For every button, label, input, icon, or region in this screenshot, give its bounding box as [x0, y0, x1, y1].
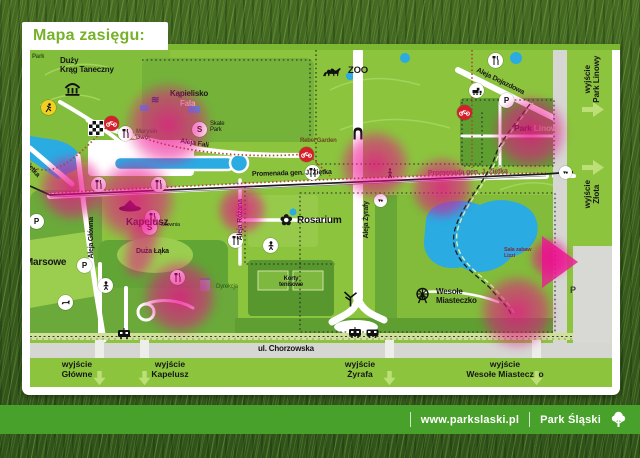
label-skate-park: Skate Park [210, 121, 224, 134]
restaurant-icon [118, 126, 133, 141]
parking-icon: P [499, 93, 514, 108]
label-rosarium: Rosarium [297, 216, 342, 227]
exit-arrow-right [582, 102, 604, 122]
label-park-linowy: Park Linowy [514, 124, 562, 133]
exit-arrow-down [137, 371, 152, 387]
footer-divider [529, 412, 530, 427]
viewpoint-icon: ▾● [374, 194, 387, 207]
bus-icon [366, 329, 379, 338]
page-title: Mapa zasięgu: [33, 27, 145, 45]
arch-monument-icon [352, 126, 364, 140]
label-aleja-glowna: Aleja Główna [88, 210, 96, 266]
playground-icon [263, 238, 278, 253]
parking-letter: P [570, 286, 576, 296]
label-sala-zabaw: Sala zabaw Lizzi [504, 248, 531, 260]
footer-bar: www.parkslaski.pl Park Śląski [0, 405, 640, 434]
label-dyrekcja: Dyrekcja [216, 284, 238, 290]
label-wesole: Wesołe Miasteczko [436, 288, 477, 305]
map-card: Park Duży Krąg Taneczny Kąpielisko Fala … [22, 44, 620, 395]
label-silownia: Siłownia [161, 223, 180, 229]
label-park: Park [32, 54, 44, 60]
footer-website[interactable]: www.parkslaski.pl [421, 414, 519, 426]
exit-arrow-down [382, 371, 397, 387]
label-aleja-rozana: Aleja Różana [237, 192, 245, 248]
tram-icon [117, 328, 131, 339]
park-map: Park Duży Krąg Taneczny Kąpielisko Fala … [30, 50, 612, 387]
ferris-wheel-icon [414, 287, 431, 304]
label-chorzowska: ul. Chorzowska [258, 345, 314, 354]
finish-flag-icon [88, 120, 104, 136]
kapelusz-hall-icon [118, 200, 142, 212]
walking-person-icon [386, 168, 394, 179]
viewpoint-icon: ▾● [559, 166, 572, 179]
map-title-box: Mapa zasięgu: [22, 22, 168, 50]
screenshot-root: { "title": "Mapa zasięgu:", "colors": { … [0, 0, 640, 458]
bike-icon [104, 116, 119, 131]
label-duza-laka: Duża Łąka [136, 248, 169, 256]
accent-line [165, 44, 620, 50]
skatepark-icon: S [192, 122, 207, 137]
rotunda-icon [64, 82, 81, 97]
bike-icon [457, 105, 472, 120]
restaurant-icon [170, 270, 185, 285]
label-park-linowy-b: Linowy [534, 123, 562, 133]
chorzowska-road [30, 343, 612, 358]
label-pola-marsowe: Pola Marsowe [30, 258, 66, 269]
label-korty: Korty tenisowe [268, 276, 314, 289]
playground-icon [98, 278, 113, 293]
exit-glowne: wyjście Główne [32, 360, 122, 380]
restaurant-icon [91, 177, 106, 192]
label-rebel-garden: Rebel Garden [300, 138, 337, 144]
tree-logo-icon [611, 411, 626, 428]
giraffe-statue-icon [343, 291, 358, 307]
dyrekcja-building [200, 278, 210, 291]
label-marysin-dwor: Marysin Dwór [136, 129, 157, 142]
mini-train-icon [469, 83, 484, 98]
wave-icon: ≋ [151, 96, 159, 106]
label-aleja-zyrafy: Aleja Żyrafy [363, 192, 371, 248]
exit-arrow-right [582, 160, 604, 180]
dog-icon [58, 295, 73, 310]
restaurant-icon [488, 53, 503, 68]
label-kapielisko-fala: Fala [180, 100, 195, 109]
runner-icon [41, 100, 56, 115]
label-kapielisko: Kąpielisko [170, 90, 208, 99]
label-park-linowy-a: Park [514, 123, 534, 133]
footer-divider [410, 412, 411, 427]
exit-arrow-down [92, 371, 107, 387]
camel-zoo-icon [322, 65, 343, 78]
label-zoo: ZOO [348, 66, 368, 76]
restaurant-icon [151, 177, 166, 192]
tram-icon [348, 327, 362, 338]
rose-icon: ✿ [280, 213, 292, 228]
bike-icon [299, 147, 314, 162]
regatta-canal [114, 157, 234, 170]
exit-arrow-down [529, 371, 544, 387]
railway-line [30, 333, 573, 340]
exit-wesole-miasteczko: wyjście Wesołe Miasteczko [442, 360, 568, 380]
label-duzy-krag: Duży Krąg Taneczny [60, 57, 114, 74]
parking-lot [573, 246, 612, 346]
footer-brand: Park Śląski [540, 414, 601, 426]
